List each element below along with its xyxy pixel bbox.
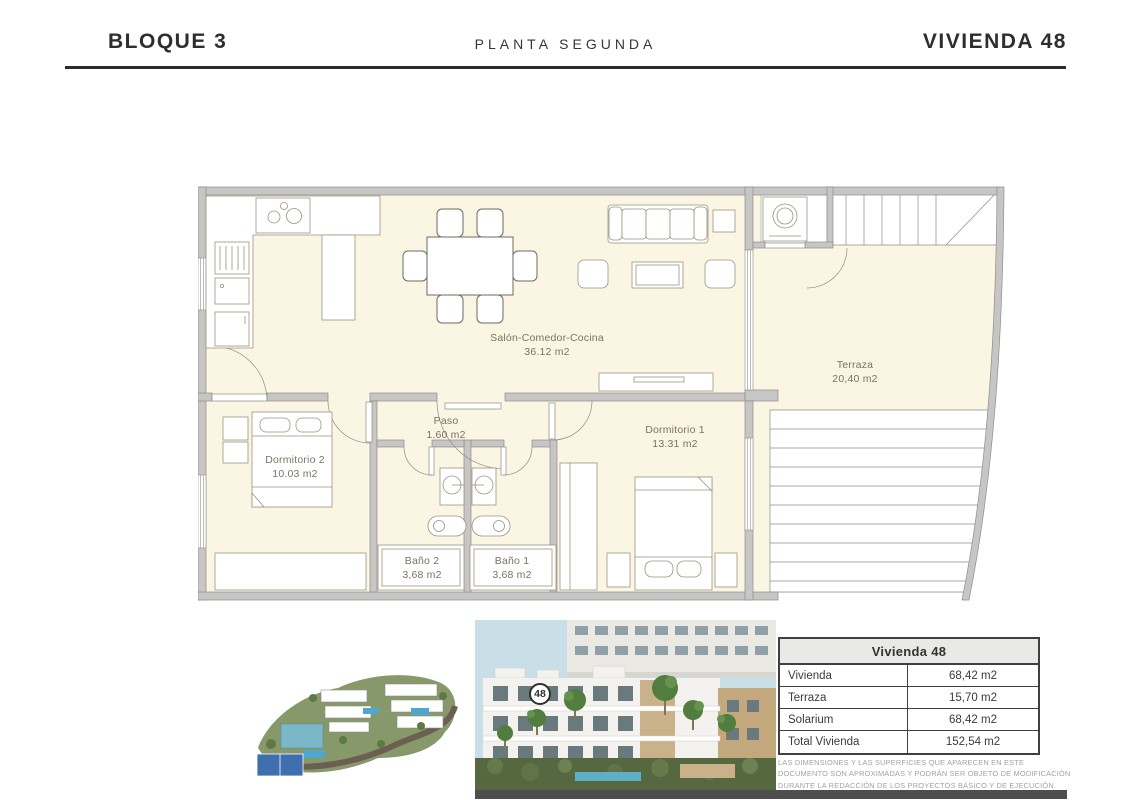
room-label-bano2: Baño 2 3,68 m2 <box>402 554 441 582</box>
table-row: Vivienda 68,42 m2 <box>780 665 1038 687</box>
room-label-paso: Paso 1.60 m2 <box>426 414 465 442</box>
table-row: Terraza 15,70 m2 <box>780 687 1038 709</box>
pouf <box>705 260 735 288</box>
washing-machine <box>763 197 807 241</box>
fridge <box>215 312 249 346</box>
room-label-bano1: Baño 1 3,68 m2 <box>492 554 531 582</box>
table-row: Total Vivienda 152,54 m2 <box>780 731 1038 753</box>
disclaimer-text: LAS DIMENSIONES Y LAS SUPERFICIES QUE AP… <box>778 757 1072 791</box>
nightstand <box>607 553 630 587</box>
brochure-page: BLOQUE 3 PLANTA SEGUNDA VIVIENDA 48 <box>0 0 1131 800</box>
nightstand <box>715 553 737 587</box>
kitchen-island <box>322 235 355 320</box>
unit-title: VIVIENDA 48 <box>923 30 1067 54</box>
wardrobe <box>560 463 597 590</box>
washbasin <box>440 468 464 505</box>
room-label-terraza: Terraza 20,40 m2 <box>832 358 877 386</box>
table-row: Solarium 68,42 m2 <box>780 709 1038 731</box>
room-label-dormitorio1: Dormitorio 1 13.31 m2 <box>645 423 705 451</box>
nightstand <box>223 442 248 463</box>
nightstand <box>223 417 248 440</box>
sink <box>215 278 249 304</box>
foreground-garden <box>475 758 776 792</box>
floor-plan: Salón-Comedor-Cocina 36.12 m2 Paso 1.60 … <box>198 185 1008 605</box>
sofa <box>608 205 708 243</box>
side-table <box>713 210 735 232</box>
stairs-bottom <box>770 410 992 592</box>
floor-plan-drawing <box>198 185 1008 605</box>
aerial-view-image <box>243 648 475 790</box>
stairs-top <box>833 188 1000 245</box>
stove <box>256 198 310 233</box>
table-title: Vivienda 48 <box>780 639 1038 665</box>
unit-number-badge: 48 <box>529 683 551 705</box>
pouf <box>578 260 608 288</box>
room-label-salon: Salón-Comedor-Cocina 36.12 m2 <box>490 331 604 359</box>
room-label-dormitorio2: Dormitorio 2 10.03 m2 <box>265 453 325 481</box>
bed-dormitorio1 <box>560 463 737 590</box>
wardrobe <box>215 553 366 590</box>
washbasin <box>472 468 496 505</box>
surface-summary-table: Vivienda 48 Vivienda 68,42 m2 Terraza 15… <box>778 637 1040 755</box>
building-render-image: 48 <box>475 620 776 792</box>
header-divider <box>65 66 1066 69</box>
